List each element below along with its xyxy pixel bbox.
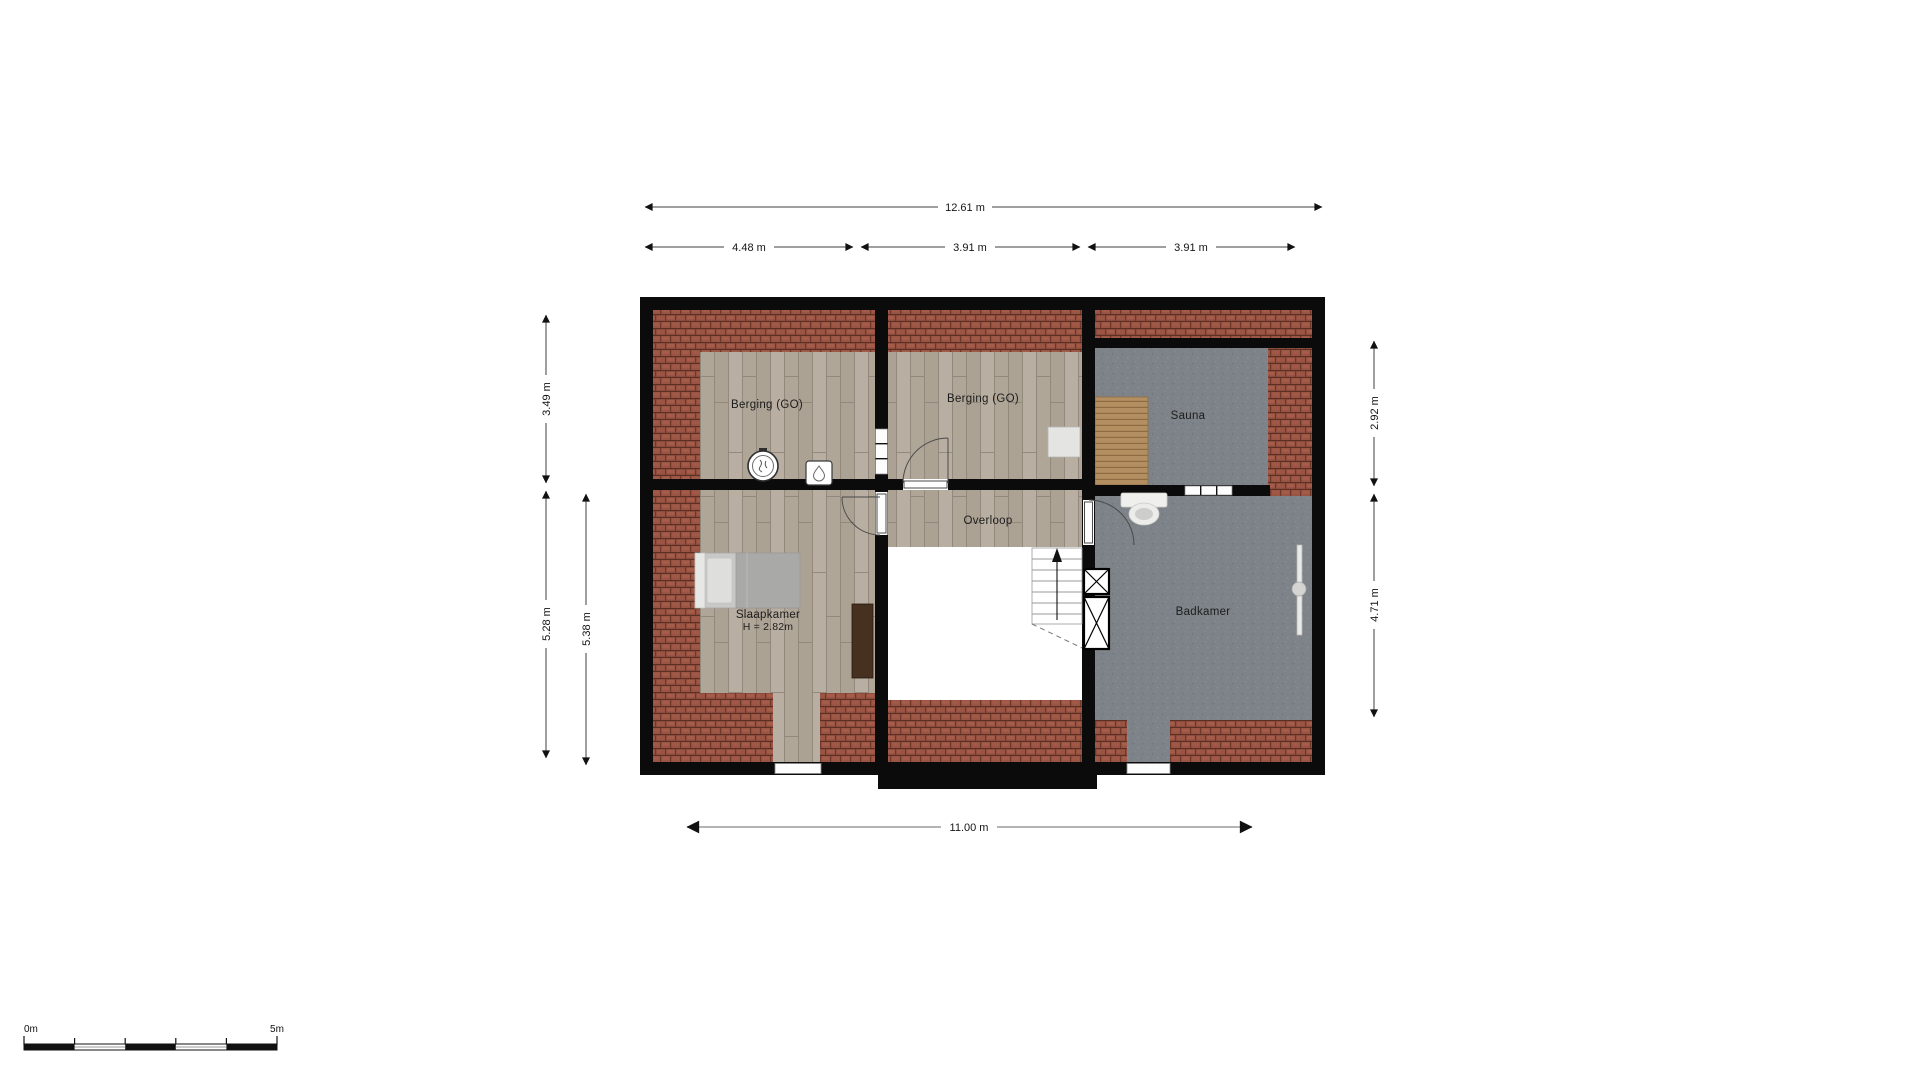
floor-slaapkamer-dormer xyxy=(773,693,820,762)
svg-text:3.49 m: 3.49 m xyxy=(541,382,553,416)
wall-right-inner-top xyxy=(1095,338,1312,348)
svg-text:4.48 m: 4.48 m xyxy=(732,242,766,254)
room-label-sauna: Sauna xyxy=(1171,410,1206,422)
svg-text:3.91 m: 3.91 m xyxy=(1174,242,1208,254)
svg-text:3.91 m: 3.91 m xyxy=(953,242,987,254)
svg-text:4.71 m: 4.71 m xyxy=(1369,588,1381,622)
dimension-left-upper: 3.49 m xyxy=(539,315,553,483)
svg-text:11.00 m: 11.00 m xyxy=(950,822,989,834)
dimension-right-upper: 2.92 m xyxy=(1367,341,1381,486)
wall-horizontal-main xyxy=(653,479,1082,490)
dimension-bottom-total: 11.00 m xyxy=(687,820,1252,834)
sauna-bench xyxy=(1095,397,1148,485)
scale-bar-start-label: 0m xyxy=(24,1024,38,1035)
floor-berging-left xyxy=(700,352,875,479)
window-between-bergings xyxy=(876,429,888,474)
wall-top xyxy=(640,297,1325,310)
dimension-top-total: 12.61 m xyxy=(645,200,1322,214)
dimension-top-seg-2: 3.91 m xyxy=(861,240,1080,254)
dimension-right-lower: 4.71 m xyxy=(1367,494,1381,717)
scale-bar-end-label: 5m xyxy=(270,1024,284,1035)
wall-divider-1 xyxy=(875,297,888,775)
dimension-left-inner: 5.38 m xyxy=(579,494,593,765)
window-slaapkamer-bottom xyxy=(775,764,821,774)
svg-text:2.92 m: 2.92 m xyxy=(1369,396,1381,430)
svg-text:5.38 m: 5.38 m xyxy=(581,612,593,646)
floor-plan-svg: Berging (GO) Berging (GO) Sauna Overloop… xyxy=(0,0,1920,1080)
wall-bottom-middle-extension xyxy=(878,775,1097,789)
dimension-top-seg-1: 4.48 m xyxy=(645,240,853,254)
chimney-shaft-icon xyxy=(1084,569,1109,649)
bed xyxy=(695,553,800,608)
scale-bar: 0m 5m xyxy=(24,1024,284,1050)
wall-right xyxy=(1312,297,1325,775)
floor-berging-mid xyxy=(888,352,1082,479)
water-heater-icon xyxy=(806,461,832,485)
wall-left xyxy=(640,297,653,775)
svg-text:12.61 m: 12.61 m xyxy=(945,202,985,214)
dimension-top-seg-3: 3.91 m xyxy=(1088,240,1295,254)
room-label-slaapkamer: Slaapkamer xyxy=(736,609,800,621)
dimension-left-lower: 5.28 m xyxy=(539,491,553,758)
floor-fills xyxy=(653,310,1312,762)
window-sauna xyxy=(1185,486,1232,495)
floor-plan-canvas: Berging (GO) Berging (GO) Sauna Overloop… xyxy=(0,0,1920,1080)
room-label-berging-mid: Berging (GO) xyxy=(947,393,1019,405)
svg-text:5.28 m: 5.28 m xyxy=(541,607,553,641)
window-badkamer-bottom xyxy=(1127,764,1170,774)
dresser xyxy=(852,604,873,678)
cabinet xyxy=(1048,427,1080,457)
room-label-berging-left: Berging (GO) xyxy=(731,399,803,411)
room-label-slaapkamer-height: H = 2.82m xyxy=(743,621,794,633)
wall-bottom xyxy=(640,762,1325,775)
room-label-overloop: Overloop xyxy=(963,515,1012,527)
room-label-badkamer: Badkamer xyxy=(1176,606,1231,618)
floor-badkamer-dormer xyxy=(1127,720,1170,762)
